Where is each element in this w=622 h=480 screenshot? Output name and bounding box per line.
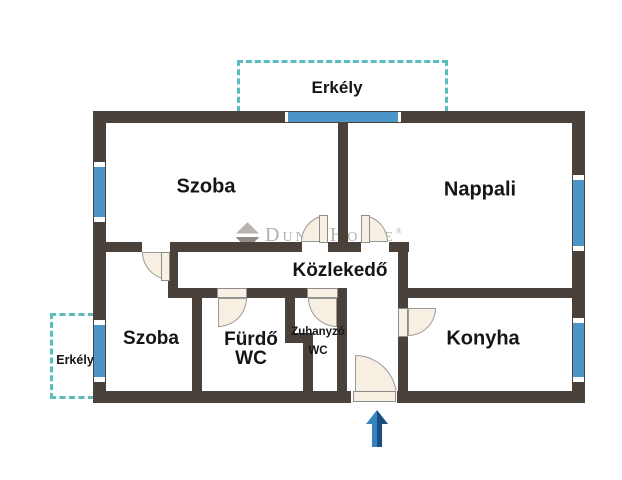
wall-szoba-nappali-divider [338,123,348,243]
door-leaf-konyha [398,308,408,337]
door-leaf-zuhanyzo [307,288,338,298]
wall-szoba-furdo-divider [192,288,202,403]
wall-corridor-south-b [247,288,308,298]
window-top [288,112,398,122]
window-cap [94,217,105,222]
window-cap [573,246,584,251]
room-label-konyha: Konyha [446,328,519,351]
wall-nappali-konyha-divider [398,288,578,298]
room-label-erkely-top: Erkély [311,78,362,98]
door-leaf-szoba-top [319,215,328,243]
registered-mark: ® [396,226,402,235]
room-label-kozlekedo: Közlekedő [292,260,387,282]
door-leaf-nappali [361,215,370,243]
window-szoba-top [94,167,105,217]
doorway-szoba-top [302,242,328,252]
doorway-szoba-bottom [142,242,170,252]
wall-corridor-north-c [328,242,361,252]
wall-konyha-west-upper [398,242,408,308]
window-cap [573,377,584,382]
window-cap [94,377,105,382]
window-nappali [573,180,584,246]
doorway-nappali [361,242,389,252]
room-label-zuhanyzo-line1: Zuhanyzó [291,323,345,342]
room-label-szoba-bottom: Szoba [123,328,179,350]
door-leaf-entrance [353,391,396,402]
wall-corridor-north-b [170,242,302,252]
entrance-arrow-icon [366,410,388,447]
wall-corridor-north-a [93,242,142,252]
room-label-furdo-line2: WC [224,349,278,368]
door-swing-furdo [218,298,247,327]
floor-plan: Duna House® [0,0,622,480]
room-label-szoba-top: Szoba [177,176,236,199]
room-label-furdo-wc: Fürdő WC [224,330,278,368]
door-swing-konyha [408,308,436,336]
window-konyha [573,323,584,377]
room-label-zuhanyzo-line2: WC [291,342,345,361]
window-cap [398,112,401,122]
door-leaf-furdo [217,288,247,298]
room-label-zuhanyzo-wc: Zuhanyzó WC [291,323,345,361]
room-label-nappali: Nappali [444,179,516,202]
room-label-furdo-line1: Fürdő [224,330,278,349]
balcony-door-szoba-bottom [94,325,105,377]
wall-konyha-west-lower [398,337,408,403]
door-leaf-szoba-bottom [161,252,170,281]
room-label-erkely-left: Erkély [56,353,94,367]
